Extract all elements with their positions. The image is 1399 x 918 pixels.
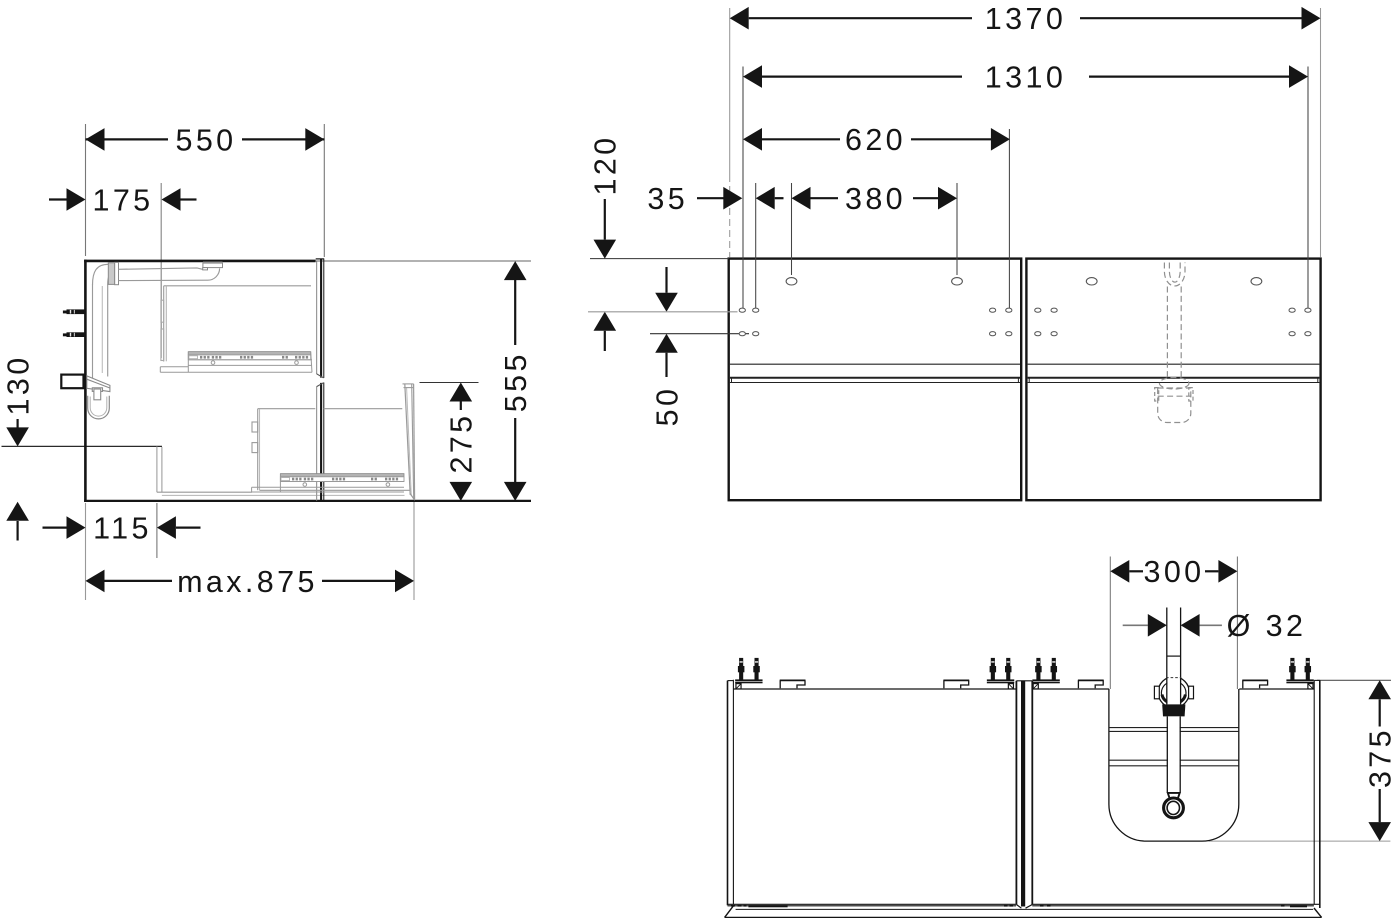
svg-text:1310: 1310 <box>985 61 1066 95</box>
svg-text:550: 550 <box>175 123 236 157</box>
svg-text:max.875: max.875 <box>177 565 318 599</box>
svg-text:375: 375 <box>1364 727 1398 788</box>
svg-text:115: 115 <box>93 512 152 546</box>
svg-text:175: 175 <box>92 183 153 217</box>
svg-text:120: 120 <box>589 134 623 195</box>
svg-text:620: 620 <box>845 123 906 157</box>
svg-text:555: 555 <box>499 351 533 412</box>
svg-text:1370: 1370 <box>985 2 1066 36</box>
svg-text:275: 275 <box>445 412 479 473</box>
svg-text:35: 35 <box>647 182 688 216</box>
svg-text:130: 130 <box>1 354 35 415</box>
svg-text:380: 380 <box>845 182 906 216</box>
svg-text:Ø 32: Ø 32 <box>1227 609 1307 643</box>
svg-text:300: 300 <box>1143 555 1204 589</box>
svg-text:50: 50 <box>650 386 684 427</box>
